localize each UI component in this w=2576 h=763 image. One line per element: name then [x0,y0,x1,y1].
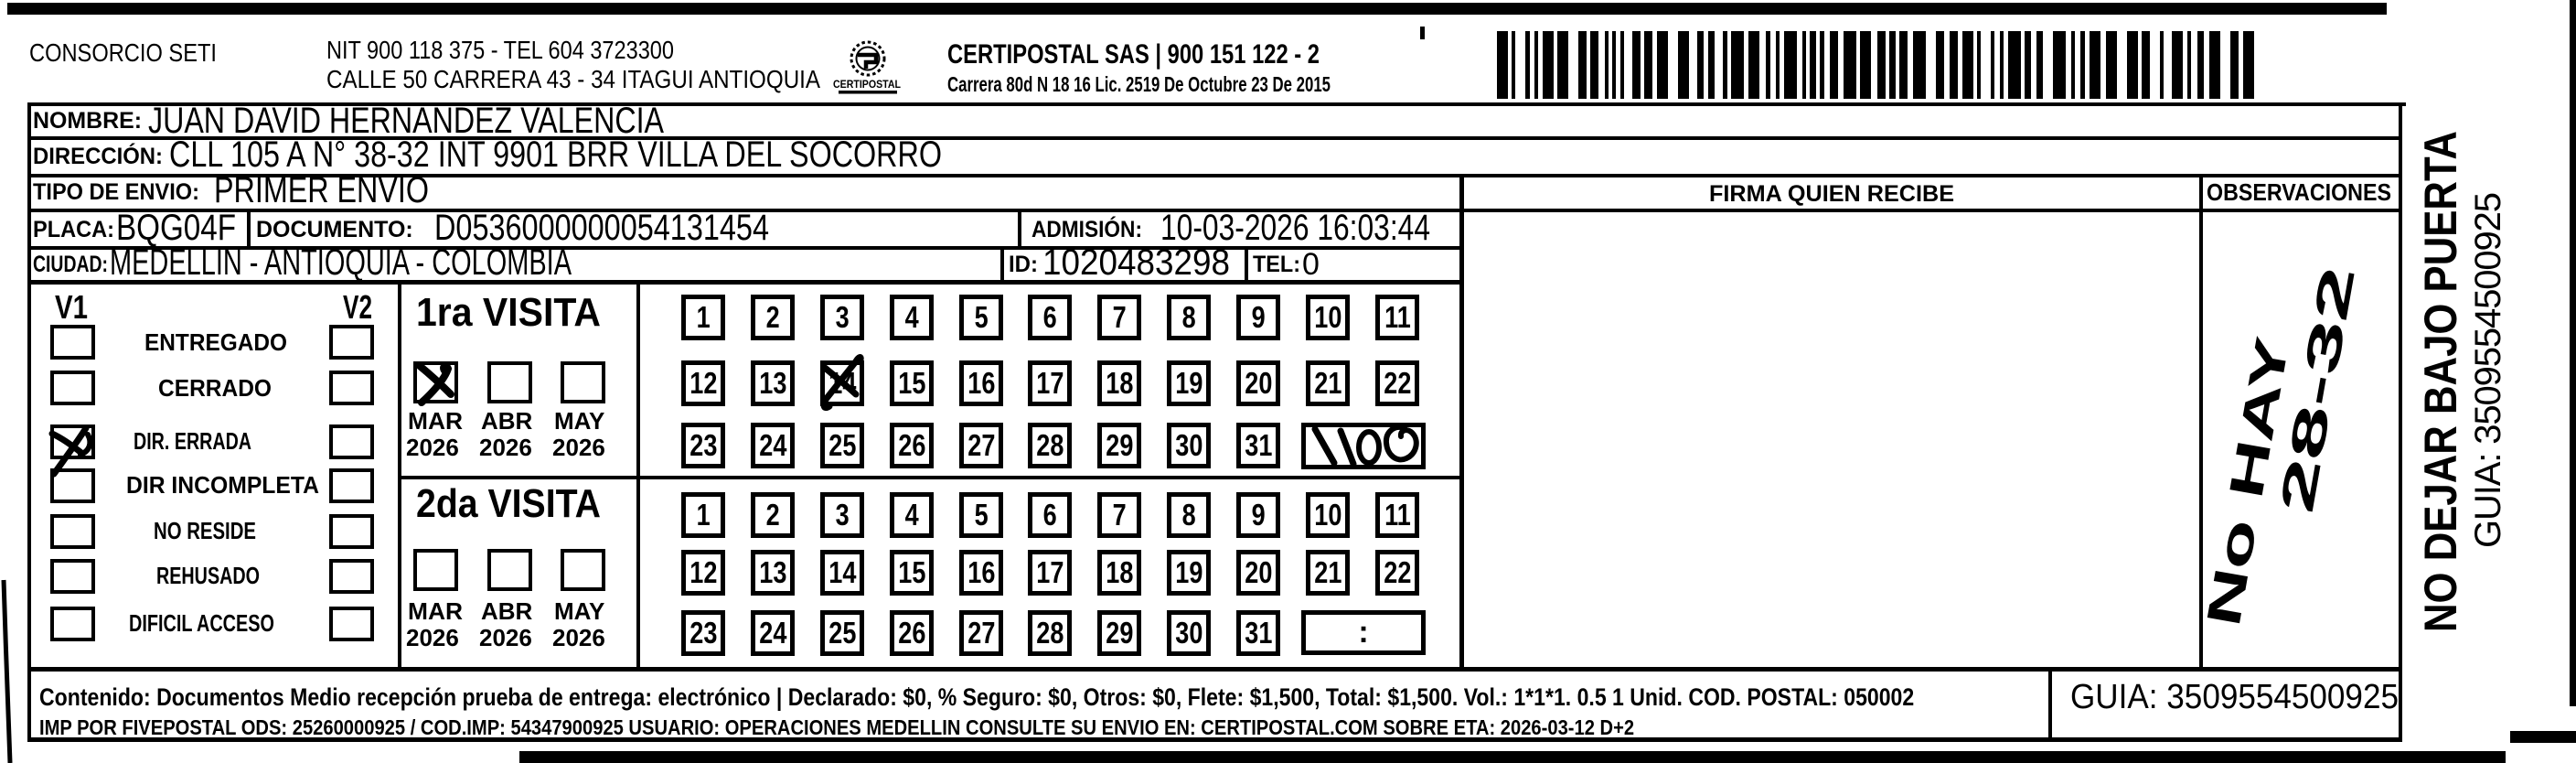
svg-text:CERTIPOSTAL: CERTIPOSTAL [833,78,901,91]
svg-text:NO DEJAR BAJO PUERTA: NO DEJAR BAJO PUERTA [2415,131,2466,632]
svg-text:GUIA: 3509554500925: GUIA: 3509554500925 [2468,192,2508,548]
